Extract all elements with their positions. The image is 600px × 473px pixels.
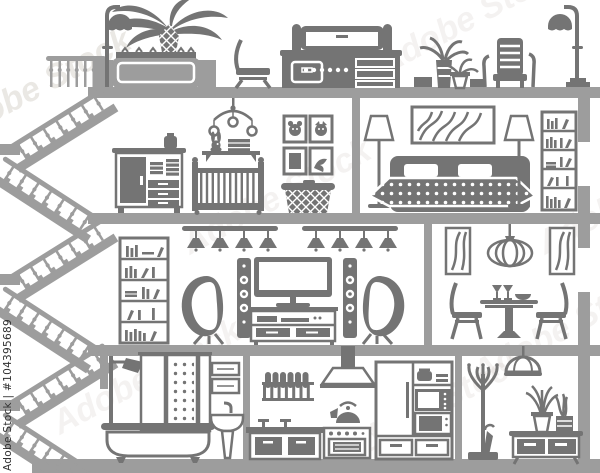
terrace-pedestal-left [95, 60, 113, 87]
jar [164, 136, 177, 149]
dresser [112, 133, 186, 213]
right-exterior-wall [578, 96, 590, 459]
bedroom-wall-art [412, 107, 494, 143]
living-room [120, 226, 404, 345]
street-lamp-right [548, 7, 590, 87]
wall-cabinets [212, 363, 239, 393]
tv [254, 257, 332, 307]
dining-wall-art-right [550, 228, 574, 274]
fruit-bowl [515, 294, 531, 300]
dining-room [446, 224, 574, 339]
grill-counter [280, 50, 402, 56]
nursery-bedroom-divider [352, 98, 360, 213]
baby-mobile [210, 98, 257, 136]
sun-lounger [484, 38, 534, 88]
dining-chair-left [452, 283, 482, 339]
egg-chair-right [363, 276, 404, 344]
terrace-chair [236, 40, 270, 88]
baby-crib [192, 157, 264, 215]
barbecue-grill [280, 24, 402, 88]
bathtub [101, 423, 215, 463]
pillow [404, 164, 438, 177]
stove [324, 428, 370, 458]
stock-id-label: Adobe Stock | #104395689 [2, 319, 14, 471]
coat-stand [467, 363, 499, 460]
watermark-text: Adobe Stock [175, 130, 379, 263]
kettle [330, 403, 360, 424]
tall-cabinet-fridge [376, 362, 452, 459]
wine-glasses [492, 285, 513, 300]
living-bookshelf [120, 238, 168, 343]
houseplant-right [556, 394, 573, 432]
tv-console [248, 307, 338, 345]
speaker-tower-left [237, 258, 251, 338]
fridge-handle [406, 382, 409, 418]
houseplant-left [526, 386, 558, 432]
kitchen-hall-divider [455, 356, 462, 459]
stock-image-preview: House interior silhouette vector illustr… [0, 0, 600, 473]
speaker-tower-right [343, 258, 357, 338]
laundry-basket [281, 180, 335, 213]
double-bed [370, 156, 535, 212]
dresser-drawers [148, 180, 179, 206]
kitchen [246, 346, 452, 459]
shower-curtain [138, 352, 212, 431]
terrace-pedestal-right [198, 60, 216, 87]
nursery [112, 98, 335, 215]
dining-pendant-lamp [488, 224, 532, 266]
stair-landing [0, 144, 20, 155]
pillow [458, 164, 492, 177]
stair-landing [0, 274, 20, 285]
roof-slab [88, 87, 600, 98]
dining-wall-art-left [446, 228, 470, 274]
second-floor-slab [88, 213, 600, 224]
microwave [415, 389, 451, 411]
living-dining-divider [424, 224, 432, 345]
bottle-shelf [262, 372, 314, 401]
bedroom-bookshelf [542, 112, 576, 210]
towel-stack [228, 139, 250, 152]
house-silhouette-illustration: House interior silhouette vector illustr… [0, 0, 600, 473]
crib-bars [200, 173, 255, 203]
washbasin [211, 403, 243, 458]
bedroom [365, 107, 576, 212]
planter-soil [116, 52, 196, 59]
pot [417, 371, 432, 381]
sink-counter [246, 419, 324, 459]
oven [415, 413, 451, 434]
